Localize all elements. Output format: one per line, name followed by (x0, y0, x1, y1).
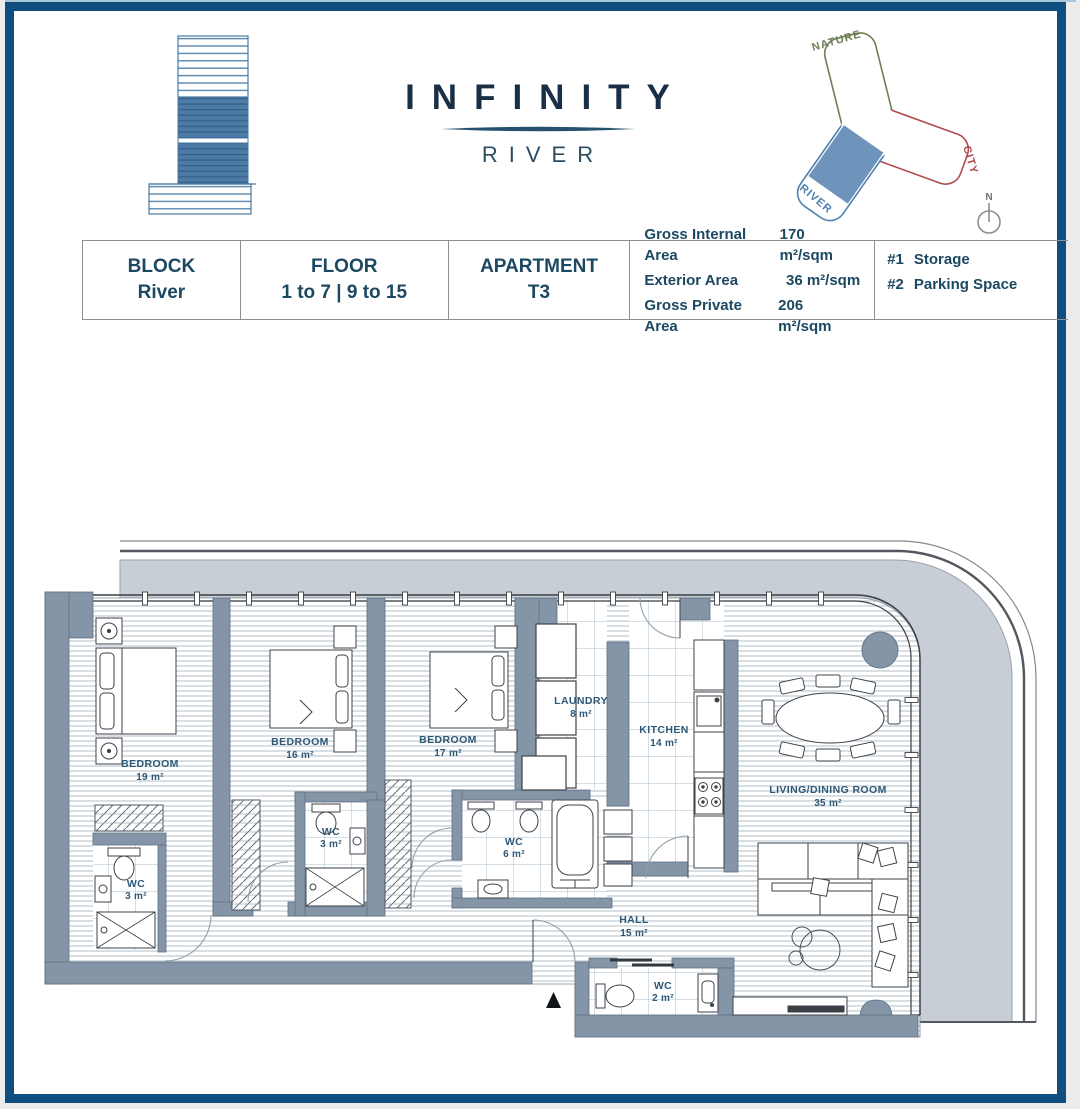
stove-icon (695, 778, 723, 814)
room-area: 19 m² (136, 772, 164, 783)
room-label: WC (127, 878, 145, 890)
room-area: 6 m² (503, 849, 525, 860)
room-area: 3 m² (125, 891, 147, 902)
room-area: 15 m² (620, 928, 648, 939)
room-label: BEDROOM (419, 734, 477, 746)
kitchen-counter (694, 640, 724, 868)
room-label: WC (322, 826, 340, 838)
room-area: 2 m² (652, 993, 674, 1004)
room-area: 3 m² (320, 839, 342, 850)
room-label: WC (505, 836, 523, 848)
room-area: 8 m² (570, 709, 592, 720)
room-label: HALL (619, 914, 649, 926)
floor-plan: BEDROOM 19 m² BEDROOM 16 m² BEDROOM 17 m… (0, 0, 1080, 1109)
room-area: 35 m² (814, 798, 842, 809)
room-label: KITCHEN (639, 724, 688, 736)
entrance-arrow (546, 992, 561, 1008)
room-label: BEDROOM (271, 736, 329, 748)
room-area: 14 m² (650, 738, 678, 749)
room-label: LAUNDRY (554, 695, 608, 707)
tv-console (733, 997, 847, 1015)
room-label: LIVING/DINING ROOM (769, 784, 886, 796)
content-layer: INFINITY RIVER NATURE CITY RIVER N BLOCK… (0, 0, 1080, 1109)
room-label: WC (654, 980, 672, 992)
room-area: 16 m² (286, 750, 314, 761)
structural-column (862, 632, 898, 668)
room-area: 17 m² (434, 748, 462, 759)
room-label: BEDROOM (121, 758, 179, 770)
